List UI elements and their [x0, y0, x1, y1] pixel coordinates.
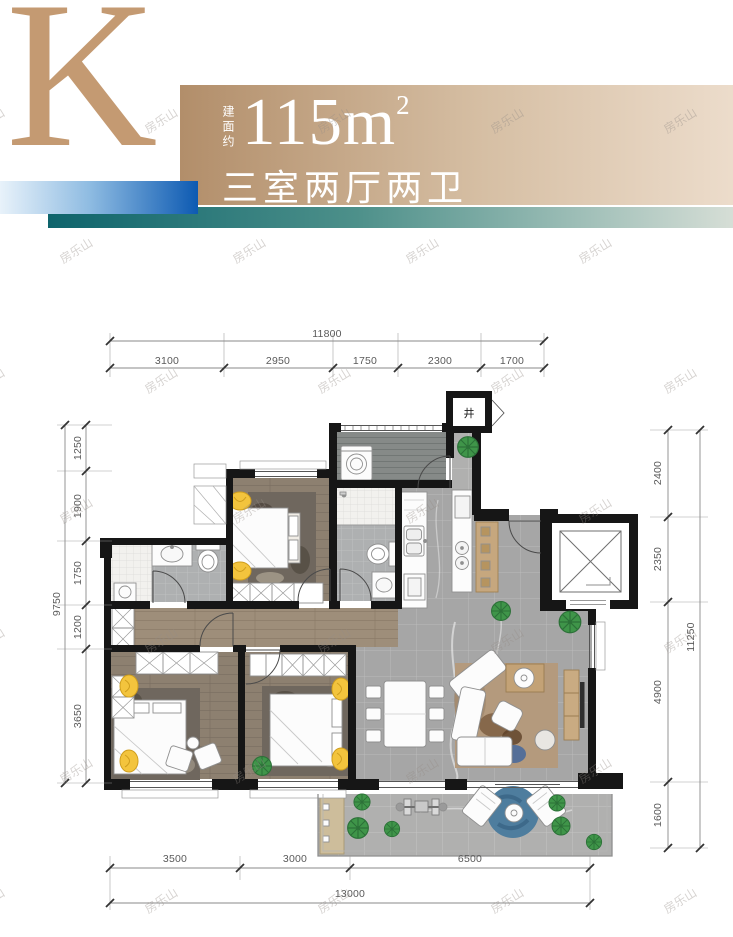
master-bed	[230, 508, 300, 568]
dim-top-seg: 1700	[500, 355, 524, 367]
dim-bottom-seg: 6500	[458, 853, 482, 865]
master-wardrobe	[228, 583, 323, 603]
shaft-door-icon	[492, 400, 504, 426]
dim-left-seg: 1200	[72, 615, 84, 639]
dining-set	[366, 681, 444, 747]
page: K 建面约 115m2 三室两厅两卫 房乐山房乐山房乐山房乐山房乐山房乐山房乐山…	[0, 0, 733, 937]
dim-top-total: 11800	[312, 328, 341, 340]
dim-top-seg: 2950	[266, 355, 290, 367]
bedroom3-wardrobe	[250, 654, 346, 676]
dim-right-seg: 2400	[652, 461, 664, 485]
dim-right-total: 11250	[685, 622, 697, 651]
dim-right-seg: 2350	[652, 547, 664, 571]
dim-bottom-seg: 3500	[163, 853, 187, 865]
dim-bottom-seg: 3000	[283, 853, 307, 865]
dim-top-seg: 3100	[155, 355, 179, 367]
dim-top-seg: 1750	[353, 355, 377, 367]
dim-left-seg: 1750	[72, 561, 84, 585]
dim-right-seg: 1600	[652, 803, 664, 827]
dim-top-seg: 2300	[428, 355, 452, 367]
dim-bottom-total: 13000	[335, 888, 365, 900]
dim-left-total: 9750	[51, 592, 63, 616]
dim-left-seg: 1900	[72, 494, 84, 518]
floor-plan-svg: 井	[0, 0, 733, 937]
washing-machine	[341, 446, 372, 480]
bedroom3-bed	[270, 694, 342, 766]
dim-right-seg: 4900	[652, 680, 664, 704]
dim-left-seg: 3650	[72, 704, 84, 728]
dim-left-seg: 1250	[72, 436, 84, 460]
utility-shaft: 井	[453, 398, 504, 426]
tv-icon	[580, 682, 585, 728]
shaft-label: 井	[464, 406, 475, 420]
